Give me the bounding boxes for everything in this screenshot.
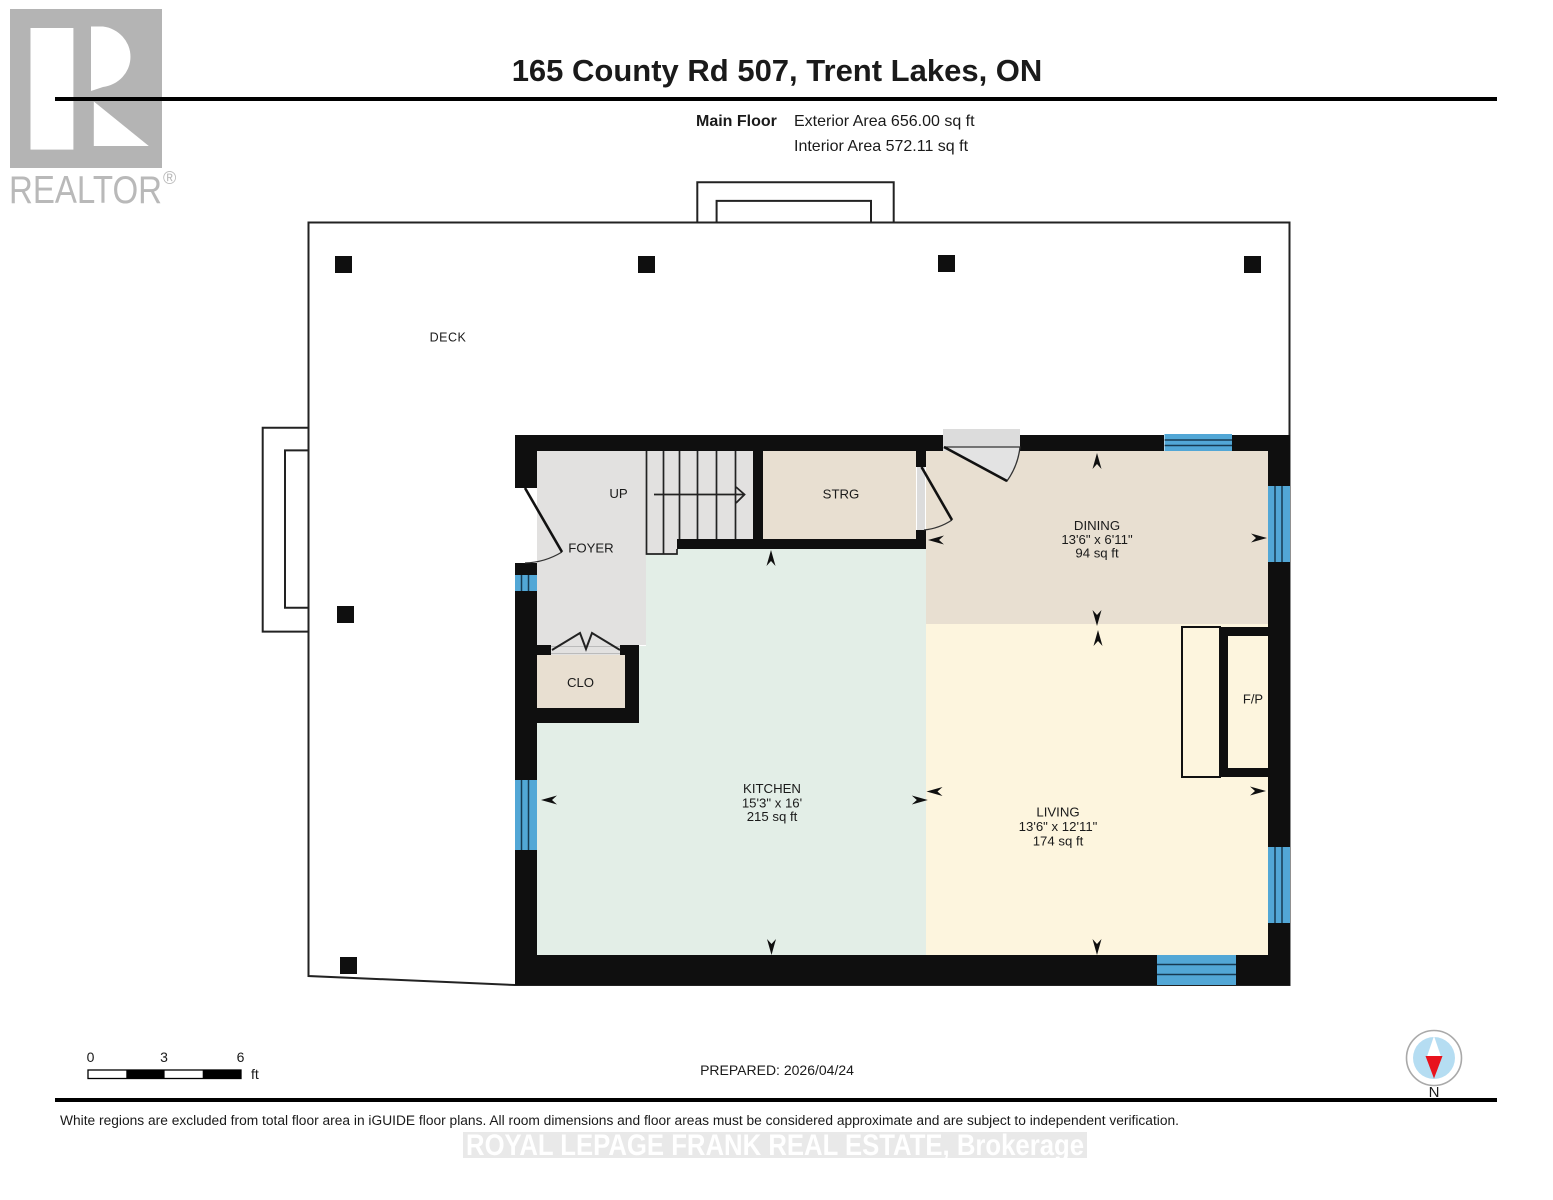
svg-text:94 sq ft: 94 sq ft — [1075, 546, 1119, 561]
svg-text:KITCHEN: KITCHEN — [743, 781, 801, 796]
svg-text:DECK: DECK — [430, 331, 467, 345]
svg-text:ft: ft — [251, 1066, 259, 1082]
svg-text:STRG: STRG — [823, 487, 860, 502]
svg-text:CLO: CLO — [567, 675, 594, 690]
svg-text:®: ® — [163, 168, 176, 188]
svg-text:LIVING: LIVING — [1036, 805, 1079, 820]
svg-text:3: 3 — [160, 1049, 168, 1065]
svg-text:UP: UP — [609, 486, 628, 501]
svg-text:13'6" x 12'11": 13'6" x 12'11" — [1019, 819, 1098, 834]
svg-text:Main Floor: Main Floor — [696, 113, 777, 130]
svg-text:PREPARED: 2026/04/24: PREPARED: 2026/04/24 — [700, 1062, 854, 1078]
svg-text:165 County Rd 507, Trent Lakes: 165 County Rd 507, Trent Lakes, ON — [512, 53, 1043, 88]
svg-text:REALTOR: REALTOR — [9, 169, 162, 212]
svg-text:174 sq ft: 174 sq ft — [1033, 834, 1084, 849]
svg-text:0: 0 — [87, 1049, 95, 1065]
svg-text:215 sq ft: 215 sq ft — [747, 809, 798, 824]
svg-text:Interior Area 572.11 sq ft: Interior Area 572.11 sq ft — [794, 138, 969, 155]
svg-text:6: 6 — [237, 1049, 245, 1065]
svg-text:Exterior Area 656.00 sq ft: Exterior Area 656.00 sq ft — [794, 113, 975, 130]
svg-text:White regions are excluded fro: White regions are excluded from total fl… — [60, 1113, 1179, 1128]
svg-text:F/P: F/P — [1243, 692, 1263, 707]
svg-text:FOYER: FOYER — [568, 541, 613, 556]
svg-text:ROYAL LEPAGE FRANK REAL ESTATE: ROYAL LEPAGE FRANK REAL ESTATE, Brokerag… — [466, 1129, 1084, 1162]
svg-text:DINING: DINING — [1074, 518, 1120, 533]
